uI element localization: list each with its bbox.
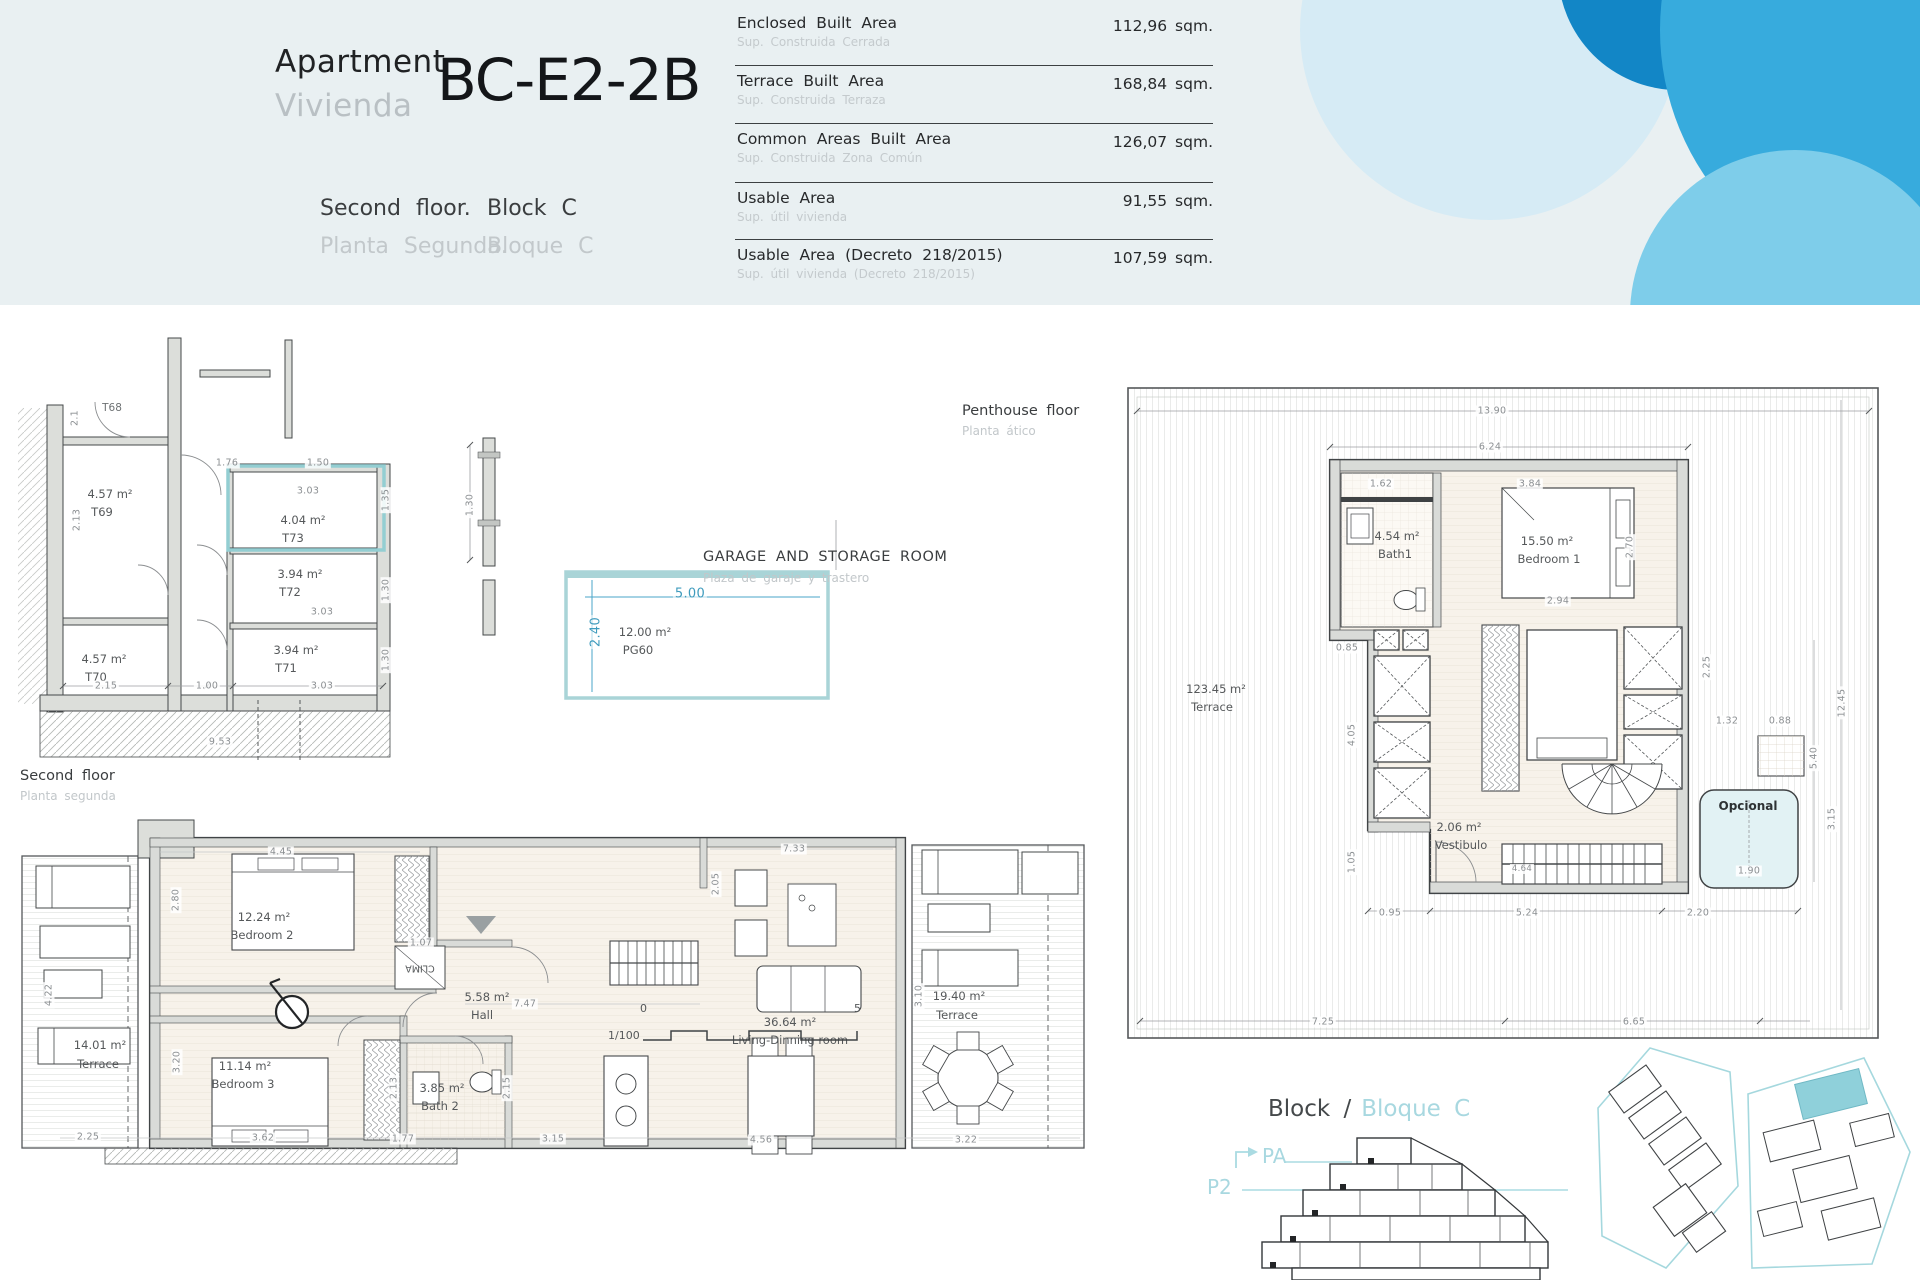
dim-label: 12.45: [1837, 687, 1848, 720]
dim-label: 1.30: [381, 577, 392, 603]
area-label-en: Common Areas Built Area: [737, 130, 951, 148]
garage-area: 12.00 m²: [619, 625, 671, 639]
storage-room-label: T68: [102, 402, 122, 414]
dim-label: 13.90: [1476, 406, 1509, 417]
area-label-en: Terrace Built Area: [737, 72, 884, 90]
area-value: 126,07 sqm.: [1113, 133, 1213, 151]
bedroom3-label: Bedroom 3: [212, 1077, 275, 1091]
second-floor-title-en: Second floor: [20, 768, 115, 784]
table-separator: [735, 65, 1213, 66]
hall-area: 5.58 m²: [464, 990, 509, 1004]
dim-label: 2.70: [1625, 534, 1636, 560]
area-label-es: Sup. útil vivienda (Decreto 218/2015): [737, 267, 975, 281]
penthouse-terrace-label: Terrace: [1191, 700, 1233, 714]
penthouse-bath-area: 4.54 m²: [1374, 529, 1419, 543]
dim-label: 3.03: [295, 486, 321, 497]
dim-label: 1.90: [1736, 866, 1762, 877]
area-value: 112,96 sqm.: [1113, 17, 1213, 35]
dim-label: 5.24: [1514, 908, 1540, 919]
storage-room-area: 3.94 m²: [277, 567, 322, 581]
storage-room-id: T72: [279, 585, 301, 599]
optional-jacuzzi-label: Opcional: [1718, 799, 1777, 813]
dim-label: 2.80: [171, 887, 182, 913]
dim-label: 1.50: [305, 458, 331, 469]
dim-label: 3.03: [309, 607, 335, 618]
bath2-area: 3.85 m²: [419, 1081, 464, 1095]
storage-room-id: T69: [91, 505, 113, 519]
bedroom2-area: 12.24 m²: [238, 910, 290, 924]
dim-label: 3.15: [540, 1134, 566, 1145]
hall-label: Hall: [471, 1008, 493, 1022]
area-label-es: Sup. Construida Terraza: [737, 93, 886, 107]
clima-closet-label: CLIMA: [405, 963, 434, 974]
dim-label: 2.20: [1685, 908, 1711, 919]
dim-label: 0.85: [1334, 643, 1360, 654]
area-label-en: Usable Area (Decreto 218/2015): [737, 246, 1003, 264]
dim-label: 2.25: [1702, 654, 1713, 680]
unit-code: BC-E2-2B: [437, 46, 700, 114]
terrace-right-area: 19.40 m²: [933, 989, 985, 1003]
dim-label: 0.88: [1767, 716, 1793, 727]
floor-label-es: Planta Segunda.: [320, 234, 508, 259]
scale-ratio-label: 1/100: [608, 1029, 640, 1042]
dim-label: 3.03: [309, 681, 335, 692]
dim-label: 5.00: [673, 587, 707, 602]
dim-label: 2.13: [389, 1075, 400, 1101]
deco-circle-teal: [1630, 150, 1920, 305]
penthouse-bedroom-area: 15.50 m²: [1521, 534, 1573, 548]
apartment-title-es: Vivienda: [275, 88, 413, 124]
area-row: Enclosed Built Area Sup. Construida Cerr…: [735, 14, 1213, 66]
dim-label: 5.40: [1809, 745, 1820, 771]
dim-label: 3.84: [1517, 479, 1543, 490]
dim-label: 6.24: [1477, 442, 1503, 453]
dim-label: 4.22: [44, 982, 55, 1008]
dim-label: 1.35: [381, 487, 392, 513]
dim-label: 1.32: [1714, 716, 1740, 727]
penthouse-title-es: Planta ático: [962, 424, 1036, 438]
dim-label: 2.15: [502, 1075, 513, 1101]
dim-label: 1.07: [408, 938, 434, 949]
block-label-es: Bloque C: [487, 234, 593, 259]
area-label-en: Usable Area: [737, 189, 835, 207]
area-row: Common Areas Built Area Sup. Construida …: [735, 130, 1213, 182]
storage-room-area: 4.04 m²: [280, 513, 325, 527]
area-value: 107,59 sqm.: [1113, 249, 1213, 267]
dim-label: 2.40: [589, 615, 604, 649]
area-row: Usable Area Sup. útil vivienda 91,55 sqm…: [735, 189, 1213, 241]
block-section-drawing: [1180, 1095, 1600, 1280]
storage-room-area: 4.57 m²: [81, 652, 126, 666]
terrace-left-label: Terrace: [77, 1057, 119, 1071]
table-separator: [735, 182, 1213, 183]
dim-label: 2.05: [711, 871, 722, 897]
area-label-es: Sup. Construida Cerrada: [737, 35, 890, 49]
dim-label: 2.13: [72, 507, 83, 533]
dim-label: 7.33: [781, 844, 807, 855]
penthouse-vestibule-label: Vestibulo: [1435, 838, 1488, 852]
dim-label: 4.45: [268, 847, 294, 858]
dim-label: 1.62: [1368, 479, 1394, 490]
penthouse-vestibule-area: 2.06 m²: [1436, 820, 1481, 834]
apartment-title-en: Apartment: [275, 44, 445, 80]
storage-room-area: 4.57 m²: [87, 487, 132, 501]
dim-label: 4.56: [748, 1135, 774, 1146]
dim-label: 2.1: [70, 408, 81, 428]
dim-label: 2.94: [1545, 596, 1571, 607]
dim-label: 3.22: [953, 1135, 979, 1146]
dim-label: 9.53: [207, 737, 233, 748]
penthouse-bath-label: Bath1: [1378, 547, 1412, 561]
garage-plan-drawing: [430, 425, 910, 715]
floor-plan-sheet: Apartment Vivienda BC-E2-2B Second floor…: [0, 0, 1920, 1280]
dim-label: 7.47: [512, 999, 538, 1010]
dim-label: 2.25: [75, 1132, 101, 1143]
area-row: Terrace Built Area Sup. Construida Terra…: [735, 72, 1213, 124]
terrace-right-label: Terrace: [936, 1008, 978, 1022]
penthouse-title-en: Penthouse floor: [962, 403, 1079, 419]
dim-label: 1.76: [214, 458, 240, 469]
area-value: 168,84 sqm.: [1113, 75, 1213, 93]
area-label-es: Sup. Construida Zona Común: [737, 151, 922, 165]
dim-label: 4.05: [1347, 722, 1358, 748]
dim-label: 3.62: [250, 1133, 276, 1144]
penthouse-bedroom-label: Bedroom 1: [1518, 552, 1581, 566]
dim-label: 3.20: [172, 1049, 183, 1075]
garage-title-en: GARAGE AND STORAGE ROOM: [703, 549, 947, 565]
second-floor-title-es: Planta segunda: [20, 789, 116, 803]
dim-label: 1.05: [1347, 849, 1358, 875]
dim-label: 0.95: [1377, 908, 1403, 919]
bedroom3-area: 11.14 m²: [219, 1059, 271, 1073]
storage-room-id: T71: [275, 661, 297, 675]
terrace-left-area: 14.01 m²: [74, 1038, 126, 1052]
scale-start-label: 0: [640, 1002, 647, 1015]
bath2-label: Bath 2: [421, 1099, 459, 1113]
dim-label: 1.30: [381, 647, 392, 673]
dim-label: 6.65: [1621, 1017, 1647, 1028]
area-value: 91,55 sqm.: [1123, 192, 1213, 210]
dim-label: 1.77: [390, 1134, 416, 1145]
dim-label: 4.64: [1510, 864, 1534, 874]
storage-room-id: T73: [282, 531, 304, 545]
area-row: Usable Area (Decreto 218/2015) Sup. útil…: [735, 246, 1213, 298]
area-label-es: Sup. útil vivienda: [737, 210, 847, 224]
penthouse-terrace-area: 123.45 m²: [1186, 682, 1246, 696]
north-arrow-icon: [255, 975, 325, 1045]
scale-end-label: 5: [854, 1002, 861, 1015]
storage-room-area: 3.94 m²: [273, 643, 318, 657]
header-band: Apartment Vivienda BC-E2-2B Second floor…: [0, 0, 1920, 305]
garage-id: PG60: [623, 643, 653, 657]
penthouse-plan-drawing: [1118, 378, 1893, 1050]
dim-label: 1.00: [194, 681, 220, 692]
dim-label: 7.25: [1310, 1017, 1336, 1028]
area-label-en: Enclosed Built Area: [737, 14, 897, 32]
table-separator: [735, 123, 1213, 124]
garage-title-es: Plaza de garaje y trastero: [703, 571, 869, 585]
block-label-en: Block C: [487, 196, 577, 221]
dim-label: 2.15: [93, 681, 119, 692]
dim-label: 3.15: [1827, 806, 1838, 832]
table-separator: [735, 239, 1213, 240]
bedroom2-label: Bedroom 2: [231, 928, 294, 942]
dim-label: 3.10: [914, 983, 925, 1009]
site-location-map: [1580, 1040, 1920, 1280]
storage-plan-drawing: [15, 330, 400, 770]
dim-label: 1.30: [465, 492, 476, 518]
floor-label-en: Second floor.: [320, 196, 471, 221]
